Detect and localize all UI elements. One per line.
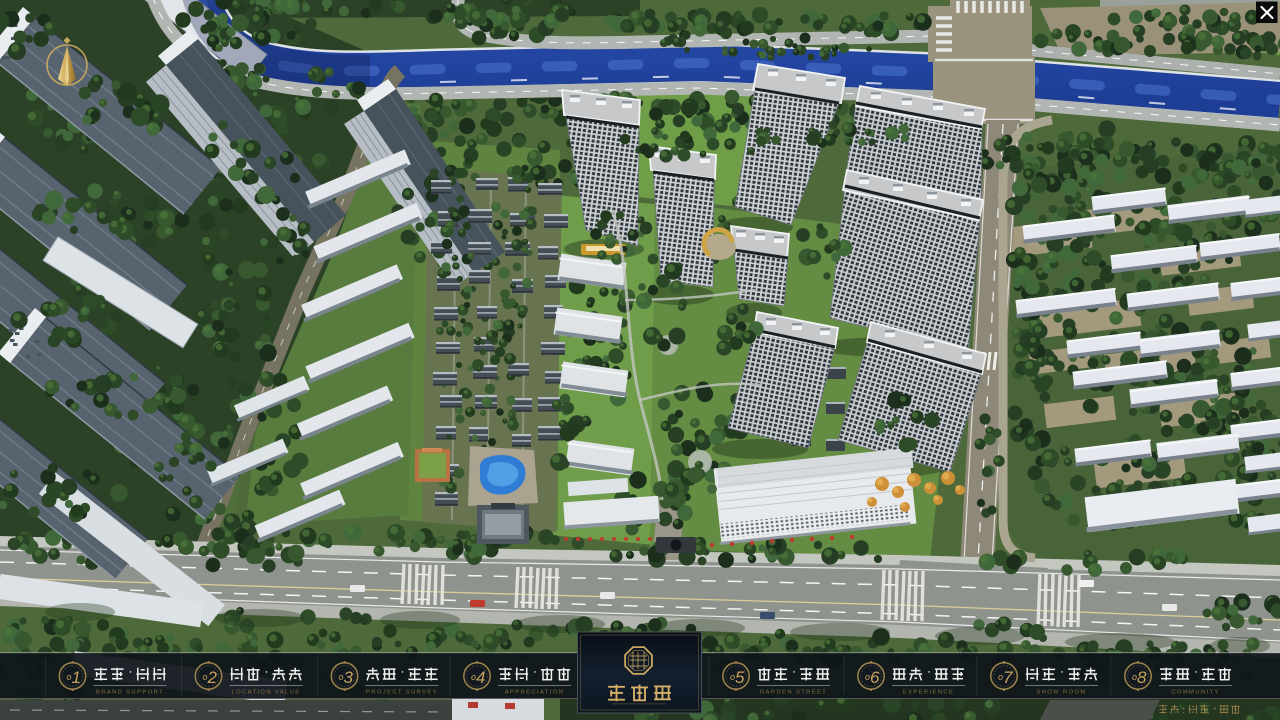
svg-text:7: 7	[1003, 668, 1013, 687]
svg-text:4: 4	[476, 668, 485, 687]
svg-text:1: 1	[72, 668, 81, 687]
svg-text:COMMUNITY: COMMUNITY	[1171, 690, 1219, 696]
svg-text:2: 2	[207, 668, 218, 687]
svg-text:APPRECIATION: APPRECIATION	[505, 690, 565, 696]
svg-text:3: 3	[344, 668, 354, 687]
svg-text:SHOW ROOM: SHOW ROOM	[1036, 690, 1086, 696]
svg-text:PROJECT SURVEY: PROJECT SURVEY	[366, 690, 438, 696]
svg-text:EXPERIENCE: EXPERIENCE	[903, 690, 954, 696]
svg-text:GARDEN STREET: GARDEN STREET	[760, 690, 827, 696]
svg-text:5: 5	[735, 668, 745, 687]
svg-text:6: 6	[870, 668, 880, 687]
svg-text::: :	[1182, 705, 1185, 715]
svg-text:LOCATION VALUE: LOCATION VALUE	[232, 690, 301, 696]
svg-text:8: 8	[1137, 668, 1147, 687]
svg-text:BRAND SUPPORT: BRAND SUPPORT	[96, 690, 164, 696]
